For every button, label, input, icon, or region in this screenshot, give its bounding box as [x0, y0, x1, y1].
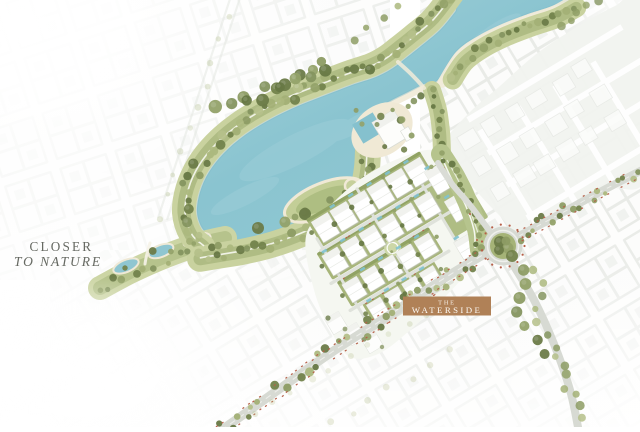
svg-text:WATERSIDE: WATERSIDE — [412, 305, 482, 315]
svg-text:CLOSER: CLOSER — [30, 239, 94, 254]
svg-text:TO NATURE: TO NATURE — [14, 254, 102, 269]
